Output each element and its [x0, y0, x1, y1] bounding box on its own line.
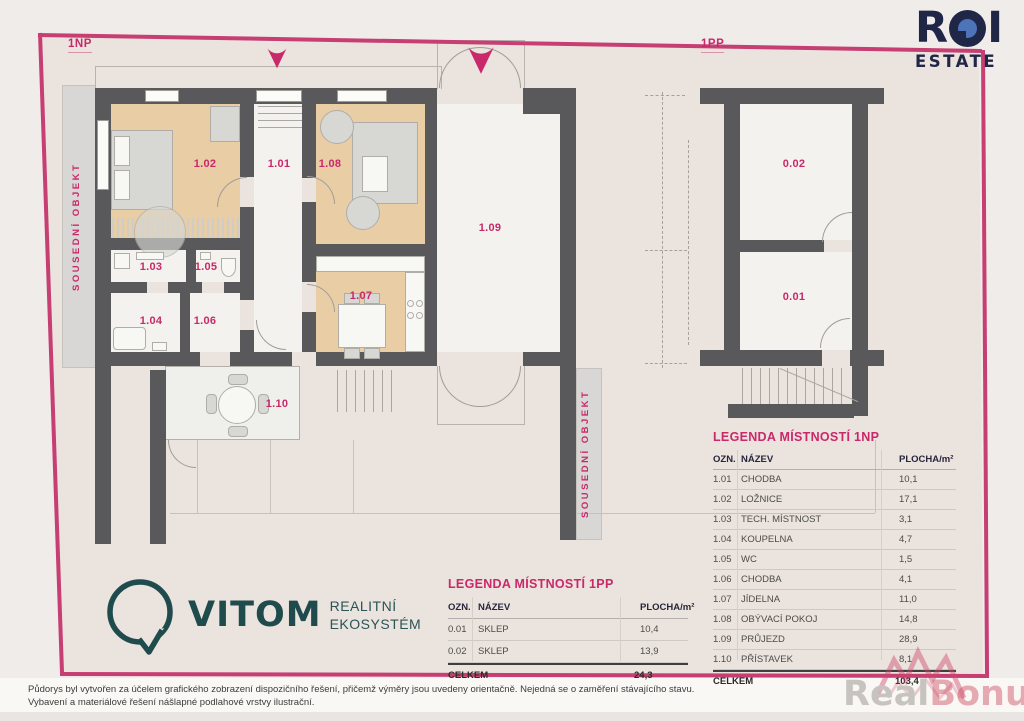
room-label-109: 1.09: [479, 222, 502, 234]
room-label-101: 1.01: [268, 158, 291, 170]
cell-nazev: CHODBA: [737, 574, 885, 585]
cell-plocha: 4,1: [885, 574, 956, 585]
cell-nazev: WC: [737, 554, 885, 565]
vitom-wordmark: VITOM: [188, 595, 322, 635]
stairs-symbol: [742, 368, 850, 404]
legend-row: 1.05 WC 1,5: [713, 550, 956, 570]
column-divider: [881, 450, 882, 660]
wall: [852, 366, 868, 416]
cell-ozn: 0.02: [448, 646, 472, 657]
wall: [700, 88, 884, 104]
room-label-105: 1.05: [195, 261, 218, 273]
burner-symbol: [416, 300, 423, 307]
roi-o-notch: [958, 31, 966, 39]
dashed-outline: [645, 363, 687, 364]
cell-ozn: 1.08: [713, 614, 737, 625]
neighbor-label-left: SOUSEDNÍ OBJEKT: [71, 90, 82, 363]
vitom-tagline-1: REALITNÍ: [330, 597, 422, 615]
burner-symbol: [407, 312, 414, 319]
dashed-outline: [688, 140, 689, 345]
legend-row: 1.01 CHODBA 10,1: [713, 470, 956, 490]
cell-plocha: 10,4: [626, 624, 688, 635]
armchair-symbol: [320, 110, 354, 144]
cell-plocha: 1,5: [885, 554, 956, 565]
vitom-logo: VITOM REALITNÍ EKOSYSTÉM: [102, 574, 421, 656]
window: [97, 120, 109, 190]
room-label-001: 0.01: [783, 291, 806, 303]
cell-plocha: 10,1: [885, 474, 956, 485]
room-label-110: 1.10: [266, 398, 289, 410]
coffee-table-symbol: [362, 156, 388, 192]
neighbor-label-right: SOUSEDNÍ OBJEKT: [580, 372, 591, 536]
wall: [302, 104, 316, 178]
room-label-107: 1.07: [350, 290, 373, 302]
chair-symbol: [206, 394, 217, 414]
legend-header-row: OZN. NÁZEV PLOCHA/m²: [713, 450, 956, 470]
cell-nazev: PRŮJEZD: [737, 634, 885, 645]
cell-plocha: 13,9: [626, 646, 688, 657]
room-101-floor: [254, 104, 302, 352]
entrance-arrow-icon: [266, 46, 288, 75]
roi-estate-logo: R I ESTATE: [915, 6, 1003, 71]
watermark-bonus: Bonus: [929, 674, 1024, 714]
floorplan-sheet: 1NP 1PP SOUSEDNÍ OBJEKT SOUSEDNÍ OBJEKT: [0, 0, 1024, 721]
legend-row: 1.07 JÍDELNA 11,0: [713, 590, 956, 610]
wall: [728, 404, 854, 418]
room-label-102: 1.02: [194, 158, 217, 170]
cell-ozn: 1.04: [713, 534, 737, 545]
cell-nazev: SKLEP: [472, 624, 626, 635]
cell-ozn: 1.03: [713, 514, 737, 525]
wall: [740, 240, 824, 252]
cell-ozn: 0.01: [448, 624, 472, 635]
wall: [560, 114, 576, 540]
room-label-103: 1.03: [140, 261, 163, 273]
wall: [168, 282, 202, 293]
wall: [724, 104, 740, 350]
cell-nazev: JÍDELNA: [737, 594, 885, 605]
watermark-real: Real: [843, 674, 929, 714]
col-nazev: NÁZEV: [472, 602, 626, 613]
cell-plocha: 28,9: [885, 634, 956, 645]
legend-row: 1.08 OBÝVACÍ POKOJ 14,8: [713, 610, 956, 630]
cell-ozn: 1.01: [713, 474, 737, 485]
total-value: 24,3: [620, 670, 688, 681]
wall: [523, 352, 560, 366]
pillow-symbol: [114, 136, 130, 166]
wall: [302, 202, 316, 282]
roi-estate-text: ESTATE: [915, 52, 1003, 71]
vitom-bubble-icon: [102, 574, 182, 656]
chair-symbol: [364, 348, 380, 359]
col-nazev: NÁZEV: [737, 454, 885, 465]
wall: [230, 352, 292, 366]
chair-symbol: [228, 374, 248, 385]
dashed-outline: [662, 92, 663, 368]
cell-plocha: 3,1: [885, 514, 956, 525]
vitom-tagline-2: EKOSYSTÉM: [330, 615, 422, 633]
col-plocha: PLOCHA/m²: [626, 602, 694, 613]
wall: [850, 350, 884, 366]
cell-ozn: 1.10: [713, 654, 737, 665]
pillow-symbol: [114, 170, 130, 200]
wall: [180, 293, 190, 352]
wall: [224, 282, 254, 293]
wall: [852, 104, 868, 350]
legend-rows: 0.01 SKLEP 10,4 0.02 SKLEP 13,9: [448, 619, 688, 663]
bathtub-symbol: [113, 327, 146, 350]
disclaimer-line-2: Vybavení a materiálové řešení nášlapné p…: [28, 697, 694, 710]
window: [145, 90, 179, 102]
vitom-tagline: REALITNÍ EKOSYSTÉM: [330, 597, 422, 633]
kitchen-counter-symbol: [316, 256, 425, 272]
column-divider: [472, 597, 473, 661]
wall: [700, 350, 822, 366]
roi-letter-i: I: [987, 6, 1003, 50]
room-label-104: 1.04: [140, 315, 163, 327]
wall: [95, 352, 200, 366]
sink-symbol: [200, 252, 211, 260]
toilet-symbol: [221, 258, 236, 277]
roi-o-bubble-icon: [949, 10, 986, 47]
legend-row: 0.02 SKLEP 13,9: [448, 641, 688, 663]
dashed-outline: [645, 250, 687, 251]
cell-nazev: PŘÍSTAVEK: [737, 654, 885, 665]
cell-ozn: 1.09: [713, 634, 737, 645]
legend-header-row: OZN. NÁZEV PLOCHA/m²: [448, 597, 688, 619]
cell-plocha: 14,8: [885, 614, 956, 625]
legend-1pp-title: LEGENDA MÍSTNOSTÍ 1PP: [448, 577, 614, 591]
col-ozn: OZN.: [448, 602, 472, 613]
wall: [240, 330, 254, 352]
cell-nazev: KOUPELNA: [737, 534, 885, 545]
cell-nazev: SKLEP: [472, 646, 626, 657]
entry-door-opening: [256, 90, 302, 102]
cell-plocha: 17,1: [885, 494, 956, 505]
col-ozn: OZN.: [713, 454, 737, 465]
wall: [523, 88, 576, 114]
cell-ozn: 1.06: [713, 574, 737, 585]
room-label-002: 0.02: [783, 158, 806, 170]
stairs-symbol: [258, 106, 302, 132]
room-label-108: 1.08: [319, 158, 342, 170]
cell-nazev: CHODBA: [737, 474, 885, 485]
burner-symbol: [407, 300, 414, 307]
sink-symbol: [152, 342, 167, 351]
stairs-symbol: [337, 370, 393, 412]
cell-nazev: LOŽNICE: [737, 494, 885, 505]
chair-symbol: [228, 426, 248, 437]
armchair-symbol: [346, 196, 380, 230]
cabinet-symbol: [210, 106, 240, 142]
terrace-outline: [197, 440, 198, 513]
cell-plocha: 11,0: [885, 594, 956, 605]
burner-symbol: [416, 312, 423, 319]
realbonus-watermark: RealBonus.cz: [843, 674, 1024, 714]
terrace-outline: [353, 440, 354, 513]
legend-row: 1.06 CHODBA 4,1: [713, 570, 956, 590]
counter-symbol: [136, 252, 164, 260]
roi-wordmark: R I: [915, 6, 1003, 50]
terrace-outline: [270, 440, 271, 513]
legend-total-row: CELKEM 24,3: [448, 663, 688, 685]
gate-arrow-icon: [466, 44, 496, 81]
wall: [240, 104, 254, 177]
legend-row: 1.04 KOUPELNA 4,7: [713, 530, 956, 550]
cell-ozn: 1.02: [713, 494, 737, 505]
column-divider: [737, 450, 738, 660]
dining-table-symbol: [338, 304, 386, 348]
wall: [95, 366, 111, 544]
disclaimer-text: Půdorys byl vytvořen za účelem grafickéh…: [28, 684, 694, 709]
wall: [316, 244, 425, 256]
disclaimer-line-1: Půdorys byl vytvořen za účelem grafickéh…: [28, 684, 694, 697]
wall: [150, 370, 166, 544]
chair-symbol: [344, 348, 360, 359]
room-label-106: 1.06: [194, 315, 217, 327]
legend-row: 0.01 SKLEP 10,4: [448, 619, 688, 641]
dashed-outline: [645, 95, 685, 96]
cell-ozn: 1.07: [713, 594, 737, 605]
column-divider: [620, 597, 621, 661]
window: [337, 90, 387, 102]
legend-row: 1.02 LOŽNICE 17,1: [713, 490, 956, 510]
plan-1pp-label: 1PP: [701, 38, 724, 53]
total-label: CELKEM: [448, 670, 620, 681]
legend-rows: 1.01 CHODBA 10,1 1.02 LOŽNICE 17,1 1.03 …: [713, 470, 956, 670]
wall: [95, 282, 147, 293]
wall: [302, 312, 316, 352]
legend-1np-title: LEGENDA MÍSTNOSTÍ 1NP: [713, 430, 879, 444]
legend-1pp-table: OZN. NÁZEV PLOCHA/m² 0.01 SKLEP 10,4 0.0…: [448, 597, 688, 685]
cell-nazev: TECH. MÍSTNOST: [737, 514, 885, 525]
cell-ozn: 1.05: [713, 554, 737, 565]
round-table-symbol: [218, 386, 256, 424]
cell-plocha: 4,7: [885, 534, 956, 545]
cell-nazev: OBÝVACÍ POKOJ: [737, 614, 885, 625]
washer-symbol: [114, 253, 130, 269]
plan-1np-label: 1NP: [68, 38, 92, 53]
wall: [425, 88, 437, 352]
col-plocha: PLOCHA/m²: [885, 454, 956, 465]
rug-symbol: [134, 206, 186, 258]
roi-letter-r: R: [915, 6, 948, 50]
legend-row: 1.03 TECH. MÍSTNOST 3,1: [713, 510, 956, 530]
